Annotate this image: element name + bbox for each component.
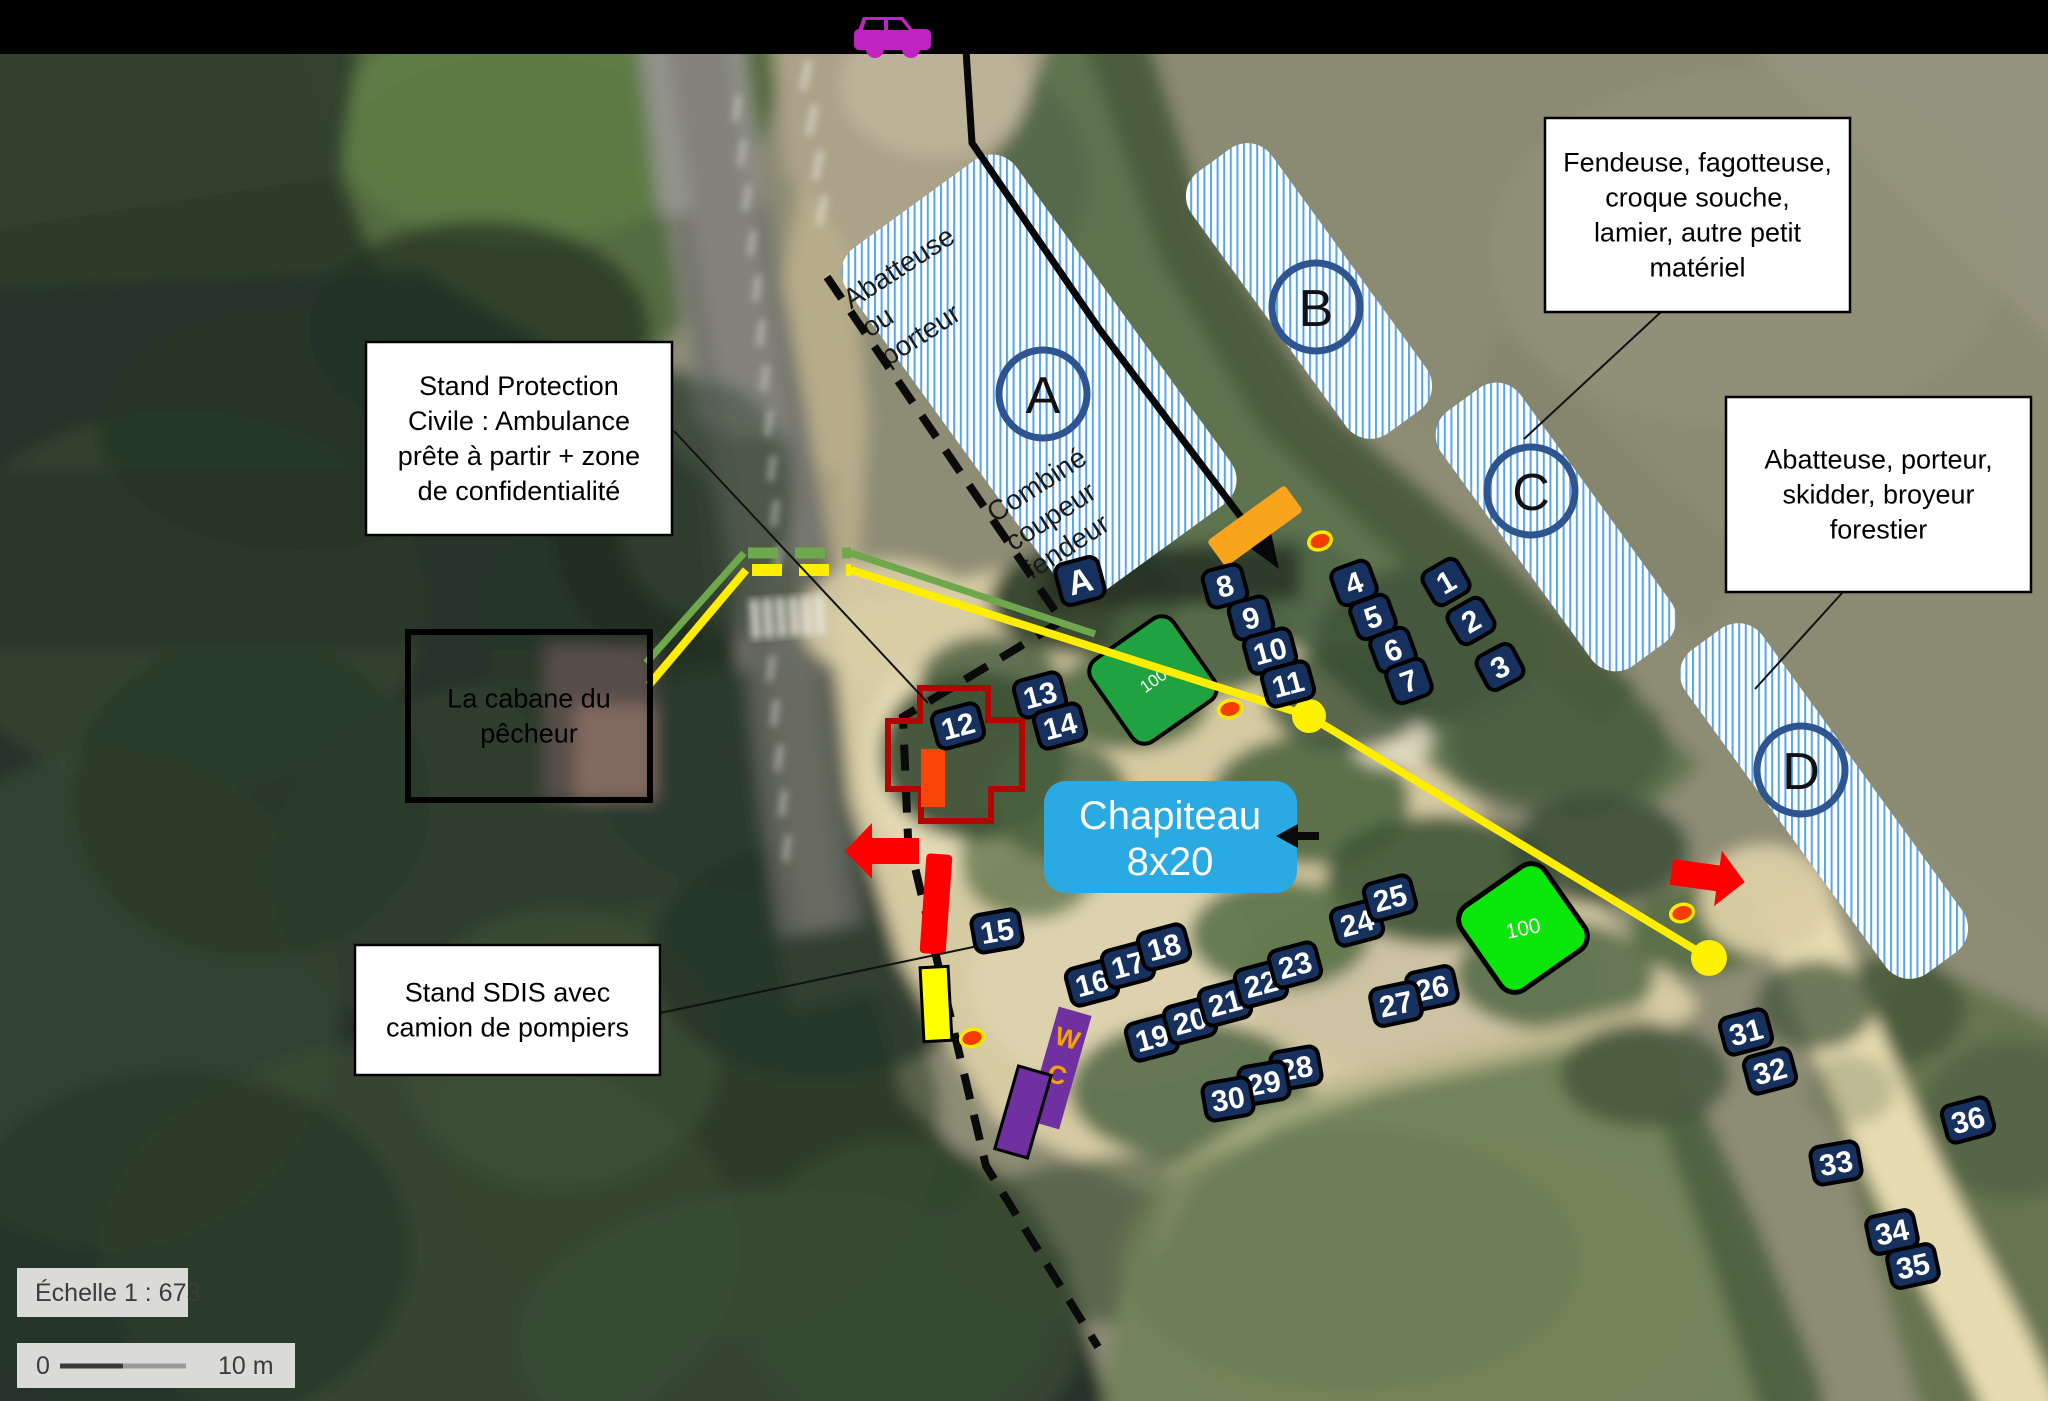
svg-text:Civile : Ambulance: Civile : Ambulance: [408, 406, 630, 436]
svg-text:lamier, autre petit: lamier, autre petit: [1594, 218, 1802, 248]
svg-text:D: D: [1782, 743, 1820, 801]
svg-text:B: B: [1299, 280, 1334, 338]
svg-text:pêcheur: pêcheur: [480, 719, 578, 749]
svg-text:Abatteuse, porteur,: Abatteuse, porteur,: [1764, 445, 1992, 475]
svg-text:Échelle 1 : 673: Échelle 1 : 673: [35, 1278, 200, 1307]
svg-text:0: 0: [36, 1352, 50, 1380]
svg-text:Stand Protection: Stand Protection: [419, 371, 619, 401]
svg-text:forestier: forestier: [1830, 515, 1928, 545]
svg-text:30: 30: [1209, 1081, 1248, 1119]
svg-text:skidder, broyeur: skidder, broyeur: [1782, 480, 1974, 510]
svg-text:27: 27: [1376, 985, 1416, 1024]
svg-text:Stand SDIS avec: Stand SDIS avec: [405, 978, 611, 1008]
svg-text:croque souche,: croque souche,: [1605, 183, 1790, 213]
svg-text:10 m: 10 m: [218, 1352, 274, 1380]
svg-text:La cabane du: La cabane du: [447, 684, 611, 714]
svg-text:8x20: 8x20: [1127, 840, 1214, 884]
svg-text:prête à partir + zone: prête à partir + zone: [398, 441, 640, 471]
svg-text:33: 33: [1817, 1145, 1856, 1183]
svg-text:de confidentialité: de confidentialité: [418, 476, 621, 506]
svg-text:15: 15: [978, 913, 1017, 951]
svg-text:A: A: [1026, 367, 1061, 425]
svg-text:camion de pompiers: camion de pompiers: [386, 1013, 629, 1043]
svg-text:35: 35: [1893, 1247, 1933, 1286]
svg-text:C: C: [1512, 464, 1550, 522]
svg-text:Chapiteau: Chapiteau: [1079, 794, 1261, 838]
svg-text:Fendeuse, fagotteuse,: Fendeuse, fagotteuse,: [1563, 148, 1832, 178]
svg-text:matériel: matériel: [1649, 253, 1745, 283]
